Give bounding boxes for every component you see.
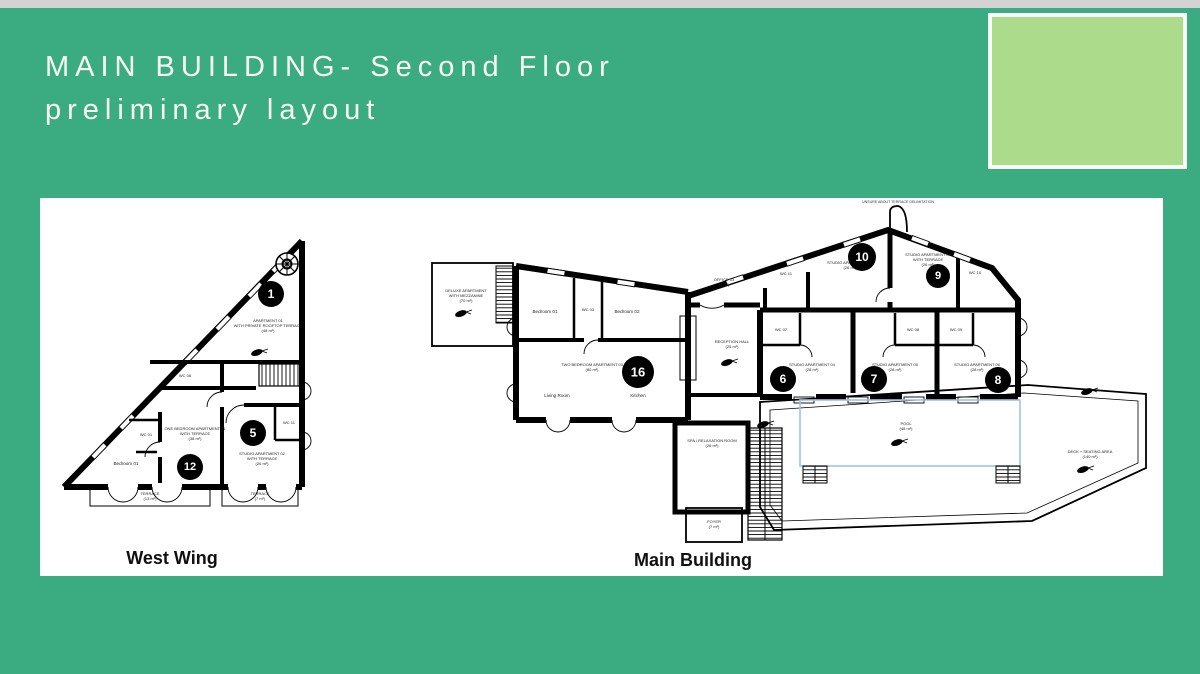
unit-marker-10: 10 [848, 243, 876, 271]
room-label-apartment1-l3: (48 m²) [262, 328, 276, 333]
floorplan-panel: 1 5 12 APARTMENT 01 WITH PRIVATE ROOFTOP… [40, 198, 1163, 576]
rosette-ornament [276, 253, 298, 275]
spa-column: SPA / RELAXATION ROOM (28 m²) FOYER (7 m… [675, 420, 782, 542]
unit-marker-5: 5 [240, 420, 266, 446]
west-wing-caption: West Wing [126, 548, 218, 568]
unit-marker-9: 9 [926, 264, 950, 288]
plant-icon [890, 438, 908, 447]
left-block: Bedroom 01 WC 03 Bedroom 02 TWO BEDROOM … [507, 266, 688, 432]
unit-marker-7: 7 [861, 366, 887, 392]
room-label-twobedroom-l2: (80 m²) [586, 367, 600, 372]
pool-outline [800, 400, 1020, 466]
main-building-caption: Main Building [634, 550, 752, 570]
room-label-deluxe-l3: (70 m²) [460, 298, 474, 303]
room-label-wc01: WC 01 [140, 432, 153, 437]
accent-square [988, 13, 1187, 169]
page-title: MAIN BUILDING- Second Floorpreliminary l… [45, 46, 615, 132]
roof-fin [890, 206, 907, 232]
deluxe-apartment: DELUXE APARTMENT WITH MEZZANINE (70 m²) [432, 263, 513, 346]
unit-marker-9-number: 9 [935, 270, 941, 282]
room-label-studio02-l3: (26 m²) [256, 461, 270, 466]
room-label-kitchen: Kitchen [630, 393, 646, 398]
west-wing-plan: 1 5 12 APARTMENT 01 WITH PRIVATE ROOFTOP… [64, 241, 311, 506]
room-label-bedroom01: Bedroom 01 [113, 461, 138, 466]
plant-icon [1076, 465, 1094, 474]
plant-icon [250, 348, 268, 357]
mezzanine-stairs [496, 266, 513, 323]
west-stairs [259, 364, 301, 386]
room-label-wc09: WC 09 [950, 327, 963, 332]
unit-marker-12-number: 12 [184, 461, 196, 473]
unit-marker-6: 6 [770, 366, 796, 392]
unit-marker-10-number: 10 [855, 250, 869, 264]
room-label-living-room: Living Room [544, 393, 570, 398]
main-building-plan: UNSURE ABOUT TERRACE DELIMITATION DELUXE… [432, 200, 1146, 542]
room-label-wc11-west: WC 11 [283, 420, 296, 425]
studios-block: WC 07 WC 08 WC 09 STUDIO APARTMENT 04 (2… [760, 310, 1027, 403]
top-strip [0, 0, 1200, 8]
plant-icon [720, 358, 738, 367]
slide-background: MAIN BUILDING- Second Floorpreliminary l… [0, 0, 1200, 674]
room-label-studio06-l2: (28 m²) [971, 367, 985, 372]
room-label-wc10: WC 10 [969, 270, 982, 275]
title-line-1: MAIN BUILDING- Second Floor [45, 51, 615, 83]
terrace-deck: POOL (48 m²) DECK + SEATING AREA (140 m²… [760, 385, 1146, 530]
room-label-reception-l2: (25 m²) [726, 344, 740, 349]
room-label-spa-l2: (28 m²) [706, 443, 720, 448]
unit-marker-16-number: 16 [631, 365, 645, 380]
unit-marker-7-number: 7 [871, 372, 878, 386]
title-line-2: preliminary layout [45, 94, 380, 126]
unit-marker-12: 12 [177, 454, 203, 480]
unit-marker-8: 8 [985, 367, 1011, 393]
floorplan-drawing: 1 5 12 APARTMENT 01 WITH PRIVATE ROOFTOP… [40, 198, 1163, 576]
unit-marker-1-number: 1 [268, 287, 275, 301]
room-label-wc03: WC 03 [582, 307, 595, 312]
unit-marker-16: 16 [622, 356, 654, 388]
unit-marker-8-number: 8 [995, 373, 1002, 387]
room-label-wc06: WC 06 [179, 373, 192, 378]
room-label-onebedroom-l3: (38 m²) [189, 436, 203, 441]
room-label-terrace-right-l2: (7 m²) [255, 496, 266, 501]
room-label-terrace-left-l2: (13 m²) [144, 496, 158, 501]
room-label-wc08: WC 08 [907, 327, 920, 332]
terrace-annotation: UNSURE ABOUT TERRACE DELIMITATION [862, 200, 934, 204]
pool-ladder-right [996, 466, 1020, 483]
room-label-office-l2: (9 m²) [719, 282, 730, 287]
unit-marker-5-number: 5 [250, 426, 257, 440]
plant-icon [454, 309, 472, 318]
room-label-studio05-l2: (28 m²) [889, 367, 903, 372]
room-label-foyer-l2: (7 m²) [709, 524, 720, 529]
room-label-wc07: WC 07 [775, 327, 788, 332]
reception-hall: RECEPTION HALL (25 m²) [680, 292, 760, 420]
unit-marker-6-number: 6 [780, 372, 787, 386]
pool-ladder-left [803, 466, 827, 483]
room-label-studio04-l2: (28 m²) [806, 367, 820, 372]
room-label-bedroom01-main: Bedroom 01 [532, 309, 557, 314]
unit-marker-1: 1 [258, 281, 284, 307]
room-label-pool-l2: (48 m²) [900, 426, 914, 431]
room-label-wc11-main: WC 11 [780, 271, 793, 276]
room-label-bedroom02: Bedroom 02 [614, 309, 639, 314]
room-label-deck-l2: (140 m²) [1082, 454, 1098, 459]
